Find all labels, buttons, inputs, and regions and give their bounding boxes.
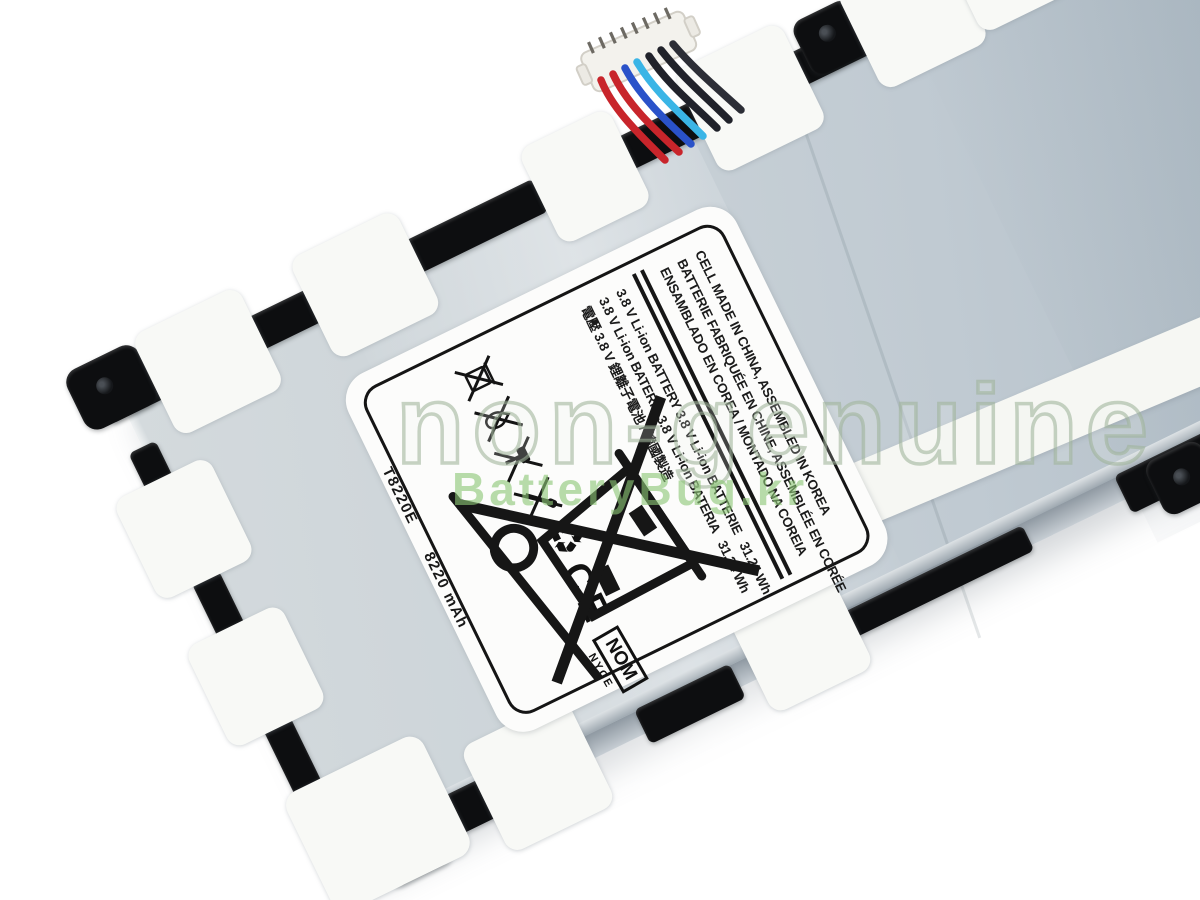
product-photo: T8220E 8220 mAh CELL MADE IN CHINA, ASSE… [0,0,1200,900]
tape-tab [184,603,328,750]
crossed-trash-icon [452,353,506,404]
crossed-fire-icon [472,394,526,445]
screw-hole [1170,466,1193,489]
tape-tab [112,455,256,602]
screw-hole [816,22,839,45]
tape-tab [288,209,443,361]
connector-cable [545,0,785,192]
tape-tab [130,285,285,437]
screw-hole [93,374,116,397]
